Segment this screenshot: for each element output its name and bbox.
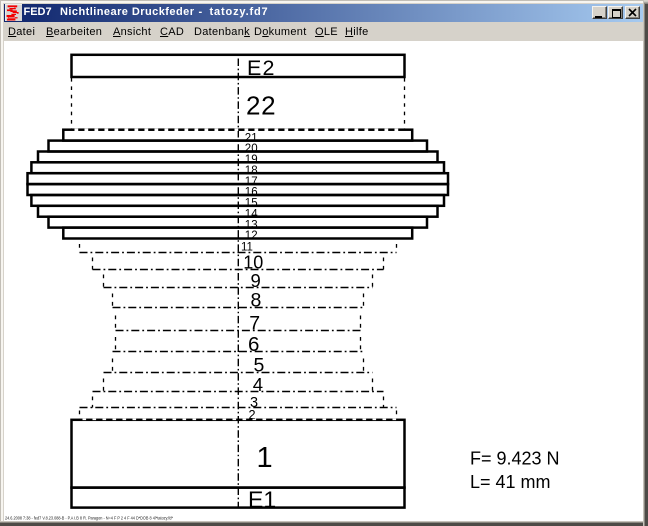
svg-text:E1: E1 [248,486,276,512]
svg-text:1: 1 [257,442,273,474]
svg-text:12: 12 [245,230,258,242]
svg-text:9: 9 [251,270,261,291]
svg-text:7: 7 [249,313,260,335]
svg-text:22: 22 [246,91,276,121]
svg-text:E2: E2 [247,56,276,80]
svg-text:L= 41 mm: L= 41 mm [470,472,551,492]
svg-text:4: 4 [253,374,263,395]
svg-text:24.6.2008 7:38 - fed7 V.8.23.0: 24.6.2008 7:38 - fed7 V.8.23.088-B - P.A… [5,515,173,520]
svg-text:F= 9.423 N: F= 9.423 N [470,449,560,469]
svg-text:8: 8 [251,289,262,311]
svg-text:6: 6 [248,333,259,356]
